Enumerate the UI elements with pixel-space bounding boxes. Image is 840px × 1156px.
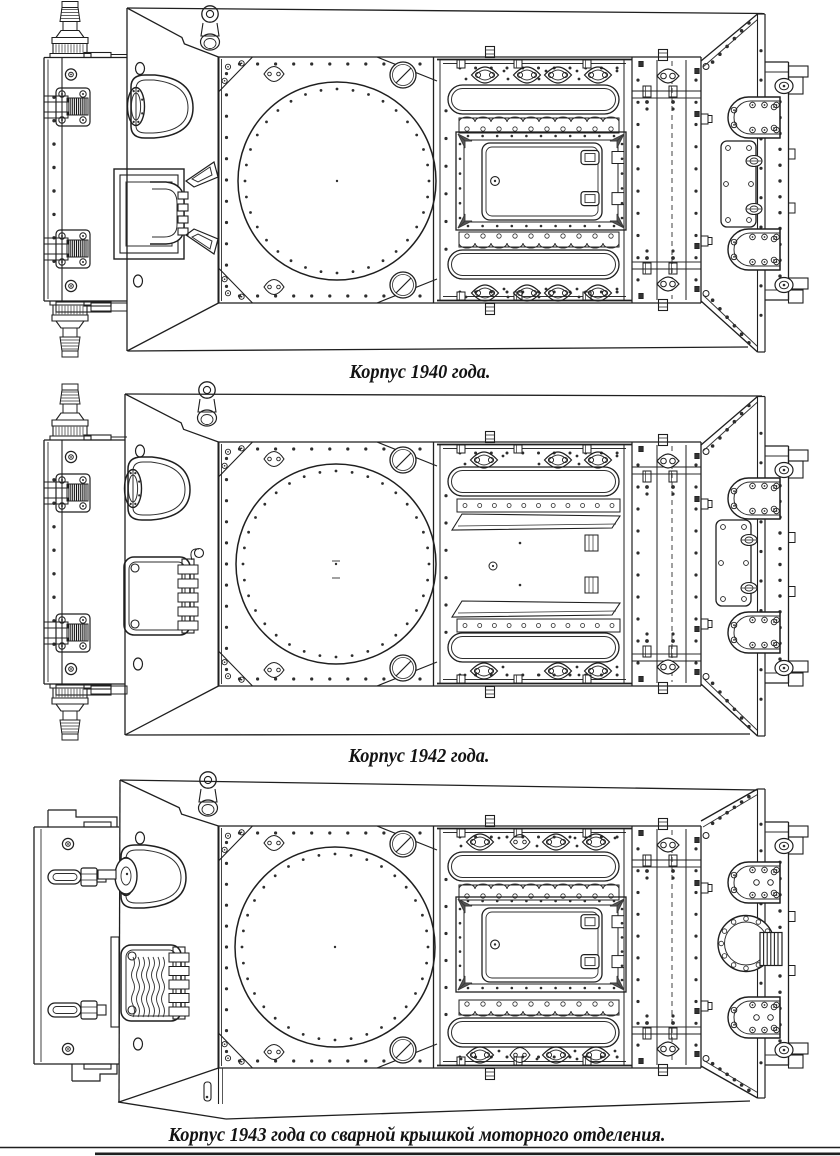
svg-text:Корпус 1940 года.: Корпус 1940 года. [349, 361, 491, 383]
svg-text:Корпус 1943 года со сварной кр: Корпус 1943 года со сварной крышкой мото… [168, 1124, 666, 1146]
svg-text:Корпус 1942 года.: Корпус 1942 года. [348, 745, 490, 767]
